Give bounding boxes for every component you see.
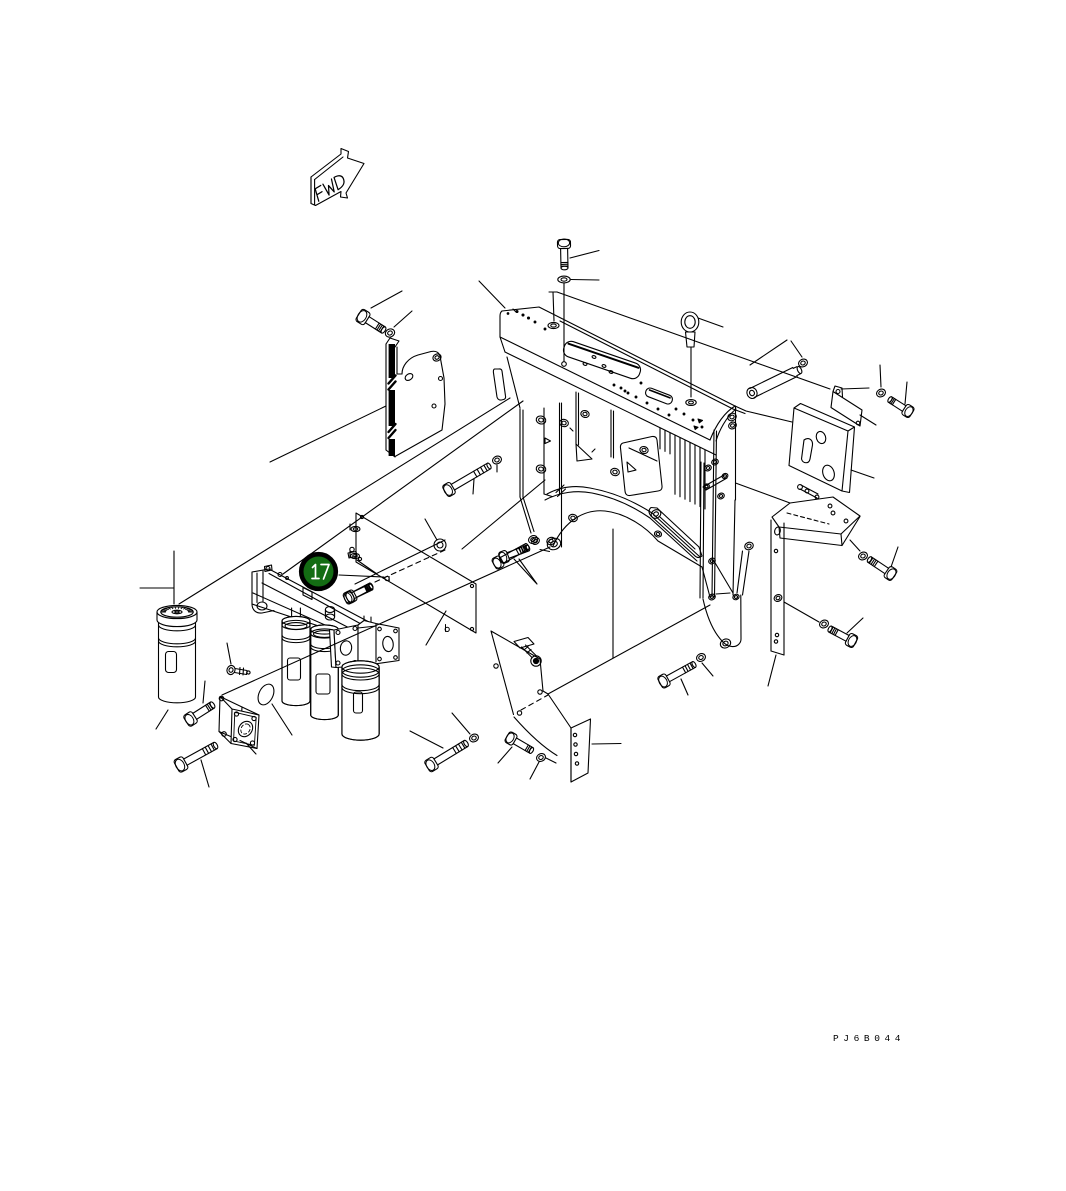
svg-text:PJ6B044: PJ6B044	[833, 1033, 905, 1044]
